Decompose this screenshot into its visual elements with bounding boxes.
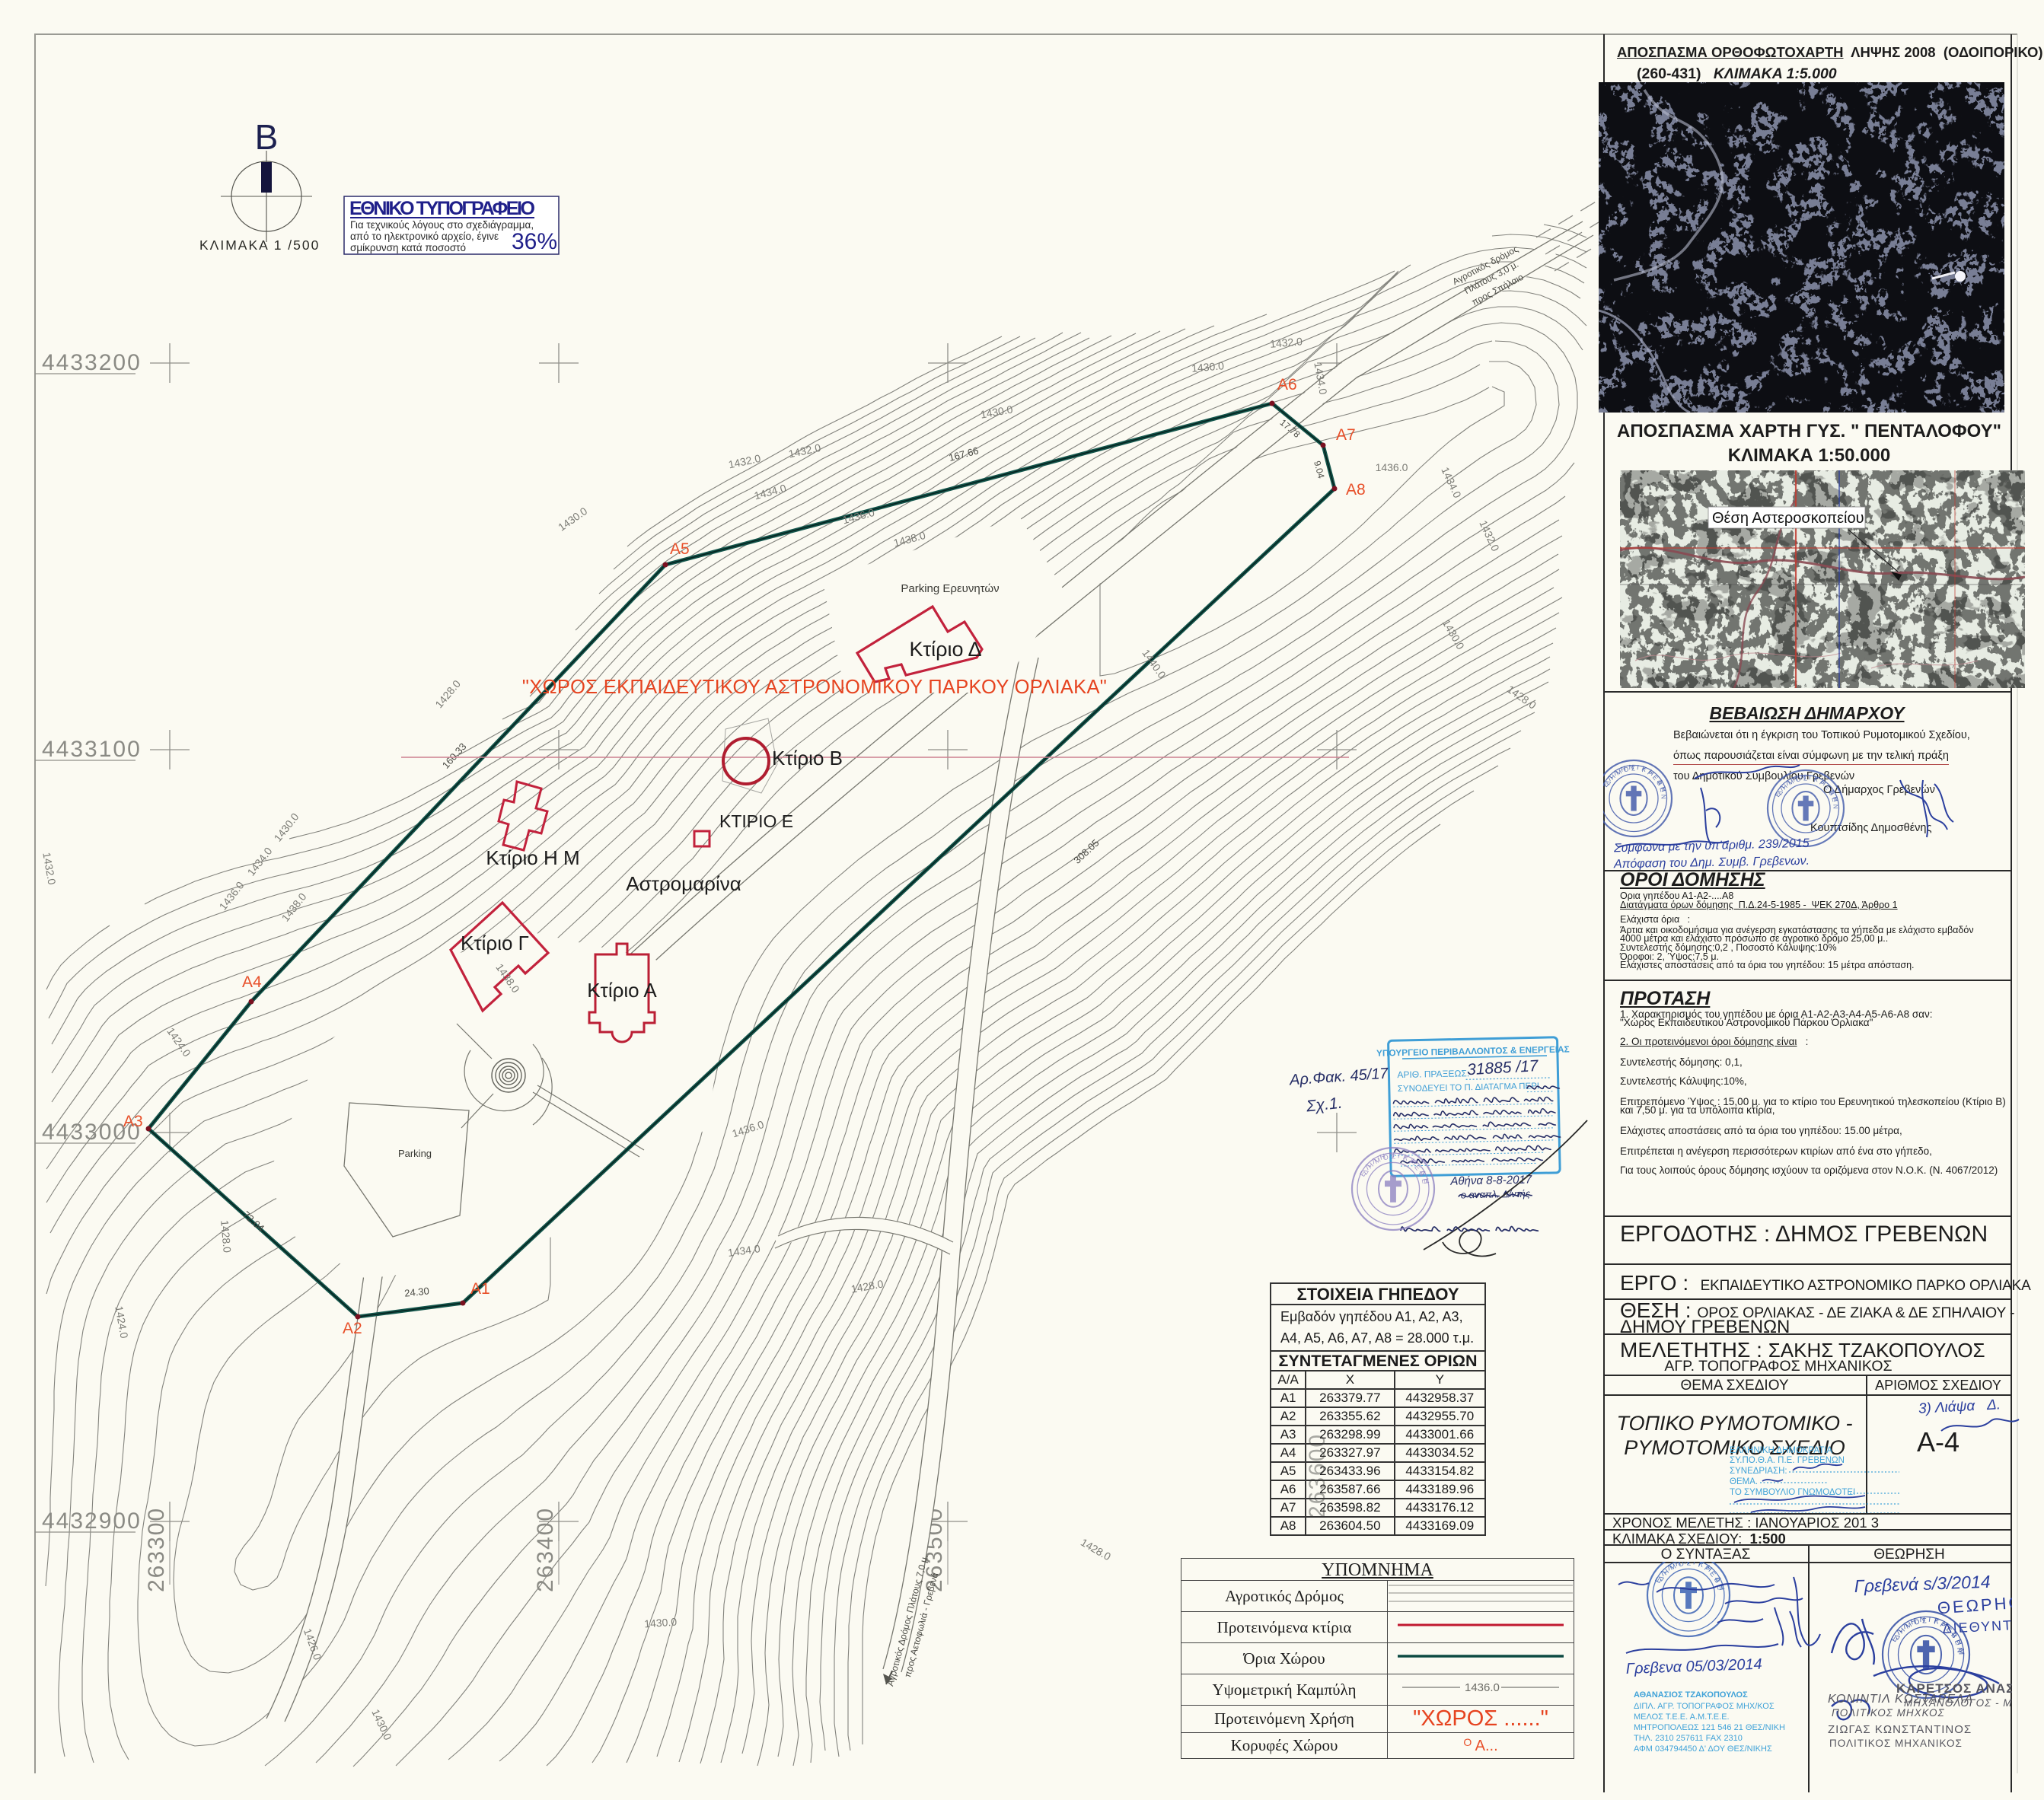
svg-text:1430.0: 1430.0 <box>644 1616 678 1630</box>
svg-text:ΜΗΤΡΟΠΟΛΕΩΣ 121 546 21 ΘΕΣ/ΝΙΚ: ΜΗΤΡΟΠΟΛΕΩΣ 121 546 21 ΘΕΣ/ΝΙΚΗ <box>1634 1723 1785 1732</box>
svg-text:ο αναπλ. Δ/ντής: ο αναπλ. Δ/ντής <box>1461 1188 1531 1201</box>
svg-text:ΠΟΛΙΤΙΚΟΣ ΜΗΧΑΝΙΚΟΣ: ΠΟΛΙΤΙΚΟΣ ΜΗΧΑΝΙΚΟΣ <box>1829 1738 1963 1749</box>
svg-text:ΚΤΙΡΙΟ Ε: ΚΤΙΡΙΟ Ε <box>719 811 793 831</box>
svg-text:263300: 263300 <box>144 1507 169 1592</box>
svg-text:1434.0: 1434.0 <box>727 1242 761 1259</box>
svg-text:31885 /17: 31885 /17 <box>1466 1057 1539 1078</box>
svg-text:ΘΕΩΡΗΘΗΚΕ: ΘΕΩΡΗΘΗΚΕ <box>1937 1590 2012 1618</box>
svg-text:ΤΟ ΣΥΜΒΟΥΛΙΟ ΓΝΩΜΟΔΟΤΕΙ: ΤΟ ΣΥΜΒΟΥΛΙΟ ΓΝΩΜΟΔΟΤΕΙ <box>1730 1488 1855 1497</box>
svg-text:ΑΦΜ 034794450 Δ' ΔΟΥ ΘΕΣ/ΝΙΚΗΣ: ΑΦΜ 034794450 Δ' ΔΟΥ ΘΕΣ/ΝΙΚΗΣ <box>1634 1744 1772 1754</box>
svg-text:4433200: 4433200 <box>42 350 142 375</box>
svg-text:Θέση Αστεροσκοπείου: Θέση Αστεροσκοπείου <box>1712 510 1864 527</box>
svg-text:1430.0: 1430.0 <box>980 403 1014 420</box>
svg-text:από το ηλεκτρονικό αρχείο, έγι: από το ηλεκτρονικό αρχείο, έγινε <box>350 231 499 242</box>
svg-text:1440.0: 1440.0 <box>1140 647 1169 680</box>
svg-text:1430.0: 1430.0 <box>272 811 301 844</box>
svg-text:A2: A2 <box>343 1320 362 1337</box>
svg-text:ΔΙΕΘΥΝΤΗΣ ΤΜ: ΔΙΕΘΥΝΤΗΣ ΤΜ <box>1942 1615 2012 1636</box>
svg-text:1430.0: 1430.0 <box>369 1707 394 1742</box>
svg-text:A6: A6 <box>1277 376 1297 393</box>
svg-text:ΜΕΛΟΣ Τ.Ε.Ε. Α.Μ.Τ.Ε.Ε.: ΜΕΛΟΣ Τ.Ε.Ε. Α.Μ.Τ.Ε.Ε. <box>1634 1712 1730 1722</box>
svg-text:A3: A3 <box>123 1113 143 1130</box>
svg-text:1432.0: 1432.0 <box>1270 335 1303 350</box>
svg-text:ΔΗΜΟΣ ΓΡΕΒΕΝΩΝ: ΔΗΜΟΣ ΓΡΕΒΕΝΩΝ <box>1603 689 1668 801</box>
svg-text:1438.0: 1438.0 <box>279 890 309 924</box>
svg-text:ΔΙΠΛ. ΑΓΡ. ΤΟΠΟΓΡΑΦΟΣ ΜΗΧ/ΚΟΣ: ΔΙΠΛ. ΑΓΡ. ΤΟΠΟΓΡΑΦΟΣ ΜΗΧ/ΚΟΣ <box>1634 1702 1775 1711</box>
svg-text:1428.0: 1428.0 <box>432 677 463 710</box>
svg-text:1434.0: 1434.0 <box>1439 465 1464 500</box>
svg-text:1438.0: 1438.0 <box>892 529 927 550</box>
svg-text:Κτίριο Γ: Κτίριο Γ <box>461 932 529 954</box>
svg-text:ΘΕΜΑ.: ΘΕΜΑ. <box>1730 1477 1758 1486</box>
svg-text:1430.0: 1430.0 <box>1191 359 1225 374</box>
svg-text:ΣΥΝΕΔΡΙΑΣΗ:: ΣΥΝΕΔΡΙΑΣΗ: <box>1730 1467 1787 1476</box>
svg-text:4432900: 4432900 <box>42 1508 142 1534</box>
svg-text:Κτίριο Η Μ: Κτίριο Η Μ <box>486 846 579 869</box>
svg-text:ΣΥΝΟΔΕΥΕΙ ΤΟ Π. ΔΙΑΤΑΓΜΑ ΠΕΡΙ: ΣΥΝΟΔΕΥΕΙ ΤΟ Π. ΔΙΑΤΑΓΜΑ ΠΕΡΙ <box>1398 1082 1539 1094</box>
svg-text:A4: A4 <box>242 973 262 991</box>
svg-text:1436.0: 1436.0 <box>1376 461 1408 473</box>
svg-text:ΖΙΩΓΑΣ ΚΩΝΣΤΑΝΤΙΝΟΣ: ΖΙΩΓΑΣ ΚΩΝΣΤΑΝΤΙΝΟΣ <box>1828 1723 1972 1736</box>
svg-text:1430.0: 1430.0 <box>556 505 589 534</box>
svg-text:Parking: Parking <box>398 1148 432 1159</box>
svg-text:Γρεβενα 05/03/2014: Γρεβενα 05/03/2014 <box>1625 1656 1762 1677</box>
svg-text:1436.0: 1436.0 <box>731 1118 766 1140</box>
svg-text:σμίκρυνση κατά ποσοστό: σμίκρυνση κατά ποσοστό <box>350 242 466 253</box>
svg-text:ΠΟΛΙΤΙΚΟΣ ΜΗΧΚΟΣ: ΠΟΛΙΤΙΚΟΣ ΜΗΧΚΟΣ <box>1832 1707 1945 1719</box>
svg-text:1428.0: 1428.0 <box>218 1220 234 1254</box>
svg-text:1432.0: 1432.0 <box>1477 518 1502 553</box>
svg-text:ΕΘΝΙΚΟ ΤΥΠΟΓΡΑΦΕΙΟ: ΕΘΝΙΚΟ ΤΥΠΟΓΡΑΦΕΙΟ <box>349 198 535 219</box>
svg-text:1424.0: 1424.0 <box>113 1305 130 1340</box>
svg-text:1434.0: 1434.0 <box>245 845 275 878</box>
svg-text:1436.0: 1436.0 <box>217 879 247 913</box>
svg-text:B: B <box>255 117 279 157</box>
svg-text:A8: A8 <box>1346 481 1366 499</box>
svg-text:Κτίριο Α: Κτίριο Α <box>587 979 657 1002</box>
svg-text:263400: 263400 <box>533 1507 558 1592</box>
svg-text:ΚΛΙΜΑΚΑ 1 /500: ΚΛΙΜΑΚΑ 1 /500 <box>199 237 320 253</box>
svg-text:1432.0: 1432.0 <box>727 452 761 471</box>
svg-text:24.30: 24.30 <box>404 1285 430 1298</box>
svg-text:1430.0: 1430.0 <box>1440 617 1467 652</box>
svg-text:Γρεβενά s/3/2014: Γρεβενά s/3/2014 <box>1854 1572 1991 1596</box>
svg-text:1436.0: 1436.0 <box>841 506 876 527</box>
svg-text:Parking Ερευνητών: Parking Ερευνητών <box>901 582 999 595</box>
svg-text:1436.0: 1436.0 <box>1465 1681 1500 1694</box>
svg-text:ΚΑΡΕΤΣΟΣ ΑΝΑΣΤΑΣΙΟΣ: ΚΑΡΕΤΣΟΣ ΑΝΑΣΤΑΣΙΟΣ <box>1896 1681 2012 1696</box>
svg-text:Κτίριο Β: Κτίριο Β <box>772 747 843 769</box>
svg-text:ΑΡΙΘ. ΠΡΑΞΕΩΣ:: ΑΡΙΘ. ΠΡΑΞΕΩΣ: <box>1397 1068 1469 1080</box>
svg-text:1432.0: 1432.0 <box>40 852 58 886</box>
svg-text:A7: A7 <box>1336 426 1356 444</box>
svg-text:ΔΗΜΟΣ ΓΡΕΒΕΝΩΝ: ΔΗΜΟΣ ΓΡΕΒΕΝΩΝ <box>1328 1142 1429 1187</box>
svg-text:1428.0: 1428.0 <box>1079 1536 1113 1563</box>
svg-text:"ΧΩΡΟΣ ΕΚΠΑΙΔΕΥΤΙΚΟΥ ΑΣΤΡΟΝΟΜΙ: "ΧΩΡΟΣ ΕΚΠΑΙΔΕΥΤΙΚΟΥ ΑΣΤΡΟΝΟΜΙΚΟΥ ΠΑΡΚΟΥ… <box>522 677 1107 698</box>
svg-text:4433100: 4433100 <box>42 737 142 762</box>
svg-text:A1: A1 <box>470 1280 490 1298</box>
svg-text:9.04: 9.04 <box>1312 460 1327 479</box>
svg-text:Αστρομαρίνα: Αστρομαρίνα <box>626 872 741 895</box>
svg-text:ΤΗΛ. 2310 257611 FAX 2310: ΤΗΛ. 2310 257611 FAX 2310 <box>1634 1734 1743 1743</box>
svg-text:Για τεχνικούς λόγους στο σχεδι: Για τεχνικούς λόγους στο σχεδιάγραμμα, <box>350 219 534 231</box>
svg-text:ΕΛΛΗΝΙΚΗ ΔΗΜΟΚΡΑΤΙΑ: ΕΛΛΗΝΙΚΗ ΔΗΜΟΚΡΑΤΙΑ <box>1603 689 1841 805</box>
svg-text:36%: 36% <box>512 229 557 254</box>
svg-text:Κτίριο Δ: Κτίριο Δ <box>909 638 981 661</box>
svg-text:ΕΛΛΗΝΙΚΗ ΔΗΜΟΚΡΑΤΙΑ: ΕΛΛΗΝΙΚΗ ΔΗΜΟΚΡΑΤΙΑ <box>1730 1446 1832 1455</box>
svg-text:A5: A5 <box>670 540 690 558</box>
svg-text:ΑΘΑΝΑΣΙΟΣ ΤΖΑΚΟΠΟΥΛΟΣ: ΑΘΑΝΑΣΙΟΣ ΤΖΑΚΟΠΟΥΛΟΣ <box>1634 1690 1748 1700</box>
svg-text:ΜΗΧΑΝΟΛΟΓΟΣ - ΜΗΧΑΝΙΚΟΣ: ΜΗΧΑΝΟΛΟΓΟΣ - ΜΗΧΑΝΙΚΟΣ <box>1904 1697 2012 1709</box>
svg-text:308.05: 308.05 <box>1071 837 1101 866</box>
